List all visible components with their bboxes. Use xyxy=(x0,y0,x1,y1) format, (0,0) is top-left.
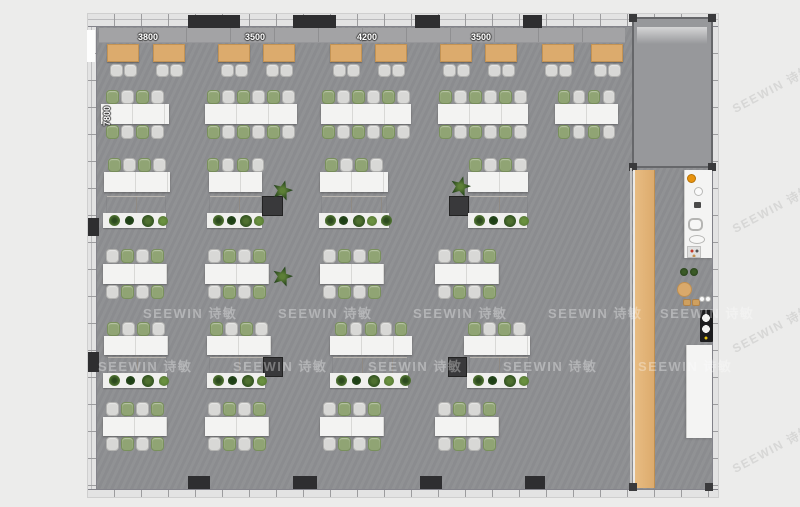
office-chair xyxy=(152,322,165,336)
office-chair xyxy=(106,90,119,104)
plant-icon xyxy=(384,376,394,386)
plant-icon xyxy=(228,376,237,385)
dark-cabinet xyxy=(262,196,283,216)
office-chair xyxy=(380,322,393,336)
booth-table xyxy=(591,44,623,62)
office-chair xyxy=(322,125,335,139)
office-chair xyxy=(136,249,149,263)
office-chair xyxy=(138,158,151,172)
wall-top xyxy=(88,14,718,27)
desk-table xyxy=(103,264,167,284)
office-chair xyxy=(469,158,482,172)
booth-chair xyxy=(124,64,137,77)
office-chair xyxy=(454,125,467,139)
office-chair xyxy=(222,158,235,172)
plant-icon xyxy=(489,216,498,225)
office-chair xyxy=(207,158,220,172)
office-chair xyxy=(237,158,250,172)
sink-icon xyxy=(688,218,703,231)
office-chair xyxy=(514,158,527,172)
watermark: SEEWIN 诗敏 xyxy=(729,60,800,116)
dark-cabinet xyxy=(448,357,467,377)
stool xyxy=(683,299,691,306)
storage-cabinet xyxy=(322,196,386,213)
floor-plan: SEEWIN 诗敏SEEWIN 诗敏SEEWIN 诗敏SEEWIN 诗敏SEEW… xyxy=(0,0,800,507)
office-chair xyxy=(223,249,236,263)
storage-cabinet xyxy=(210,196,261,213)
booth-chair xyxy=(235,64,248,77)
office-chair xyxy=(588,125,601,139)
booth-chair xyxy=(545,64,558,77)
speaker-icon xyxy=(694,202,701,208)
booth-chair xyxy=(110,64,123,77)
office-chair xyxy=(151,90,164,104)
booth-table xyxy=(153,44,185,62)
office-chair xyxy=(106,437,119,451)
dimension-label: 3500 xyxy=(471,32,491,42)
dark-cabinet xyxy=(449,196,469,216)
plant-icon xyxy=(109,215,120,226)
plant-icon xyxy=(325,215,336,226)
wall-post xyxy=(708,14,716,22)
office-chair xyxy=(368,437,381,451)
office-chair xyxy=(237,125,250,139)
office-chair xyxy=(267,90,280,104)
desk-table xyxy=(330,336,412,355)
office-chair xyxy=(210,322,223,336)
booth-table xyxy=(440,44,472,62)
office-chair xyxy=(484,125,497,139)
office-chair xyxy=(153,158,166,172)
office-chair xyxy=(240,322,253,336)
booth-table xyxy=(375,44,407,62)
booth-table xyxy=(107,44,139,62)
office-chair xyxy=(499,158,512,172)
office-chair xyxy=(106,249,119,263)
booth-chair xyxy=(347,64,360,77)
office-chair xyxy=(106,125,119,139)
office-chair xyxy=(468,249,481,263)
office-chair xyxy=(499,90,512,104)
office-chair xyxy=(588,90,601,104)
cooktop xyxy=(700,310,713,342)
office-chair xyxy=(255,322,268,336)
booth-table xyxy=(330,44,362,62)
office-chair xyxy=(136,90,149,104)
office-chair xyxy=(108,158,121,172)
office-chair xyxy=(121,125,134,139)
desk-table xyxy=(555,104,618,124)
office-chair xyxy=(353,402,366,416)
office-chair xyxy=(106,402,119,416)
booth-chair xyxy=(488,64,501,77)
office-chair xyxy=(238,402,251,416)
plant-icon xyxy=(142,215,154,227)
office-chair xyxy=(484,90,497,104)
office-chair xyxy=(382,125,395,139)
office-chair xyxy=(454,90,467,104)
office-chair xyxy=(355,158,368,172)
office-chair xyxy=(483,322,496,336)
desk-table xyxy=(205,104,297,124)
office-chair xyxy=(468,402,481,416)
wall-left xyxy=(88,27,97,489)
booth-chair xyxy=(170,64,183,77)
wall-column xyxy=(293,15,336,29)
plant-icon xyxy=(504,215,516,227)
office-chair xyxy=(368,285,381,299)
storage-cabinet xyxy=(470,196,527,213)
plant-icon xyxy=(126,376,135,385)
plant-icon xyxy=(504,375,516,387)
desk-table xyxy=(205,417,269,436)
office-chair xyxy=(558,90,571,104)
office-chair xyxy=(483,249,496,263)
office-chair xyxy=(483,437,496,451)
plant-icon xyxy=(242,375,254,387)
office-chair xyxy=(573,90,586,104)
wall-column xyxy=(420,476,442,489)
office-chair xyxy=(151,125,164,139)
booth-chair xyxy=(392,64,405,77)
desk-table xyxy=(320,417,384,436)
wall-column xyxy=(88,218,99,236)
office-chair xyxy=(136,285,149,299)
watermark: SEEWIN 诗敏 xyxy=(729,300,800,356)
desk-table xyxy=(320,172,388,192)
dimension-label: 4200 xyxy=(357,32,377,42)
office-chair xyxy=(513,322,526,336)
pantry-counter xyxy=(684,170,712,258)
booth-chair xyxy=(221,64,234,77)
dimension-label: 7800 xyxy=(102,106,112,126)
office-chair xyxy=(151,437,164,451)
office-chair xyxy=(438,437,451,451)
office-chair xyxy=(322,90,335,104)
booth-table xyxy=(263,44,295,62)
wall-column xyxy=(188,15,240,29)
office-chair xyxy=(603,90,616,104)
booth-chair xyxy=(378,64,391,77)
office-chair xyxy=(397,125,410,139)
office-chair xyxy=(337,90,350,104)
booth-table xyxy=(485,44,517,62)
booth-table xyxy=(542,44,574,62)
office-chair xyxy=(469,125,482,139)
office-chair xyxy=(340,158,353,172)
office-chair xyxy=(121,249,134,263)
booth-chair xyxy=(594,64,607,77)
office-chair xyxy=(121,90,134,104)
office-chair xyxy=(468,285,481,299)
office-chair xyxy=(238,285,251,299)
desk-table xyxy=(321,104,411,124)
office-chair xyxy=(222,90,235,104)
desk-table xyxy=(464,336,530,355)
office-chair xyxy=(368,402,381,416)
booth-chair xyxy=(608,64,621,77)
plant-icon xyxy=(109,375,120,386)
plant-icon xyxy=(213,375,224,386)
booth-chair xyxy=(443,64,456,77)
plant-icon xyxy=(227,216,236,225)
office-chair xyxy=(453,285,466,299)
desk-table xyxy=(205,264,269,284)
dark-cabinet xyxy=(263,357,283,377)
office-chair xyxy=(352,125,365,139)
office-chair xyxy=(483,285,496,299)
office-chair xyxy=(325,158,338,172)
basin-icon xyxy=(689,235,705,244)
office-chair xyxy=(136,437,149,451)
desk-table xyxy=(104,172,170,192)
wall-column xyxy=(523,15,542,29)
desk-table xyxy=(209,172,262,192)
office-chair xyxy=(208,285,221,299)
burner-icon xyxy=(687,174,696,183)
wall-post xyxy=(629,483,637,491)
booth-chair xyxy=(156,64,169,77)
office-chair xyxy=(337,125,350,139)
office-chair xyxy=(483,402,496,416)
desk-table xyxy=(320,264,384,284)
office-chair xyxy=(438,402,451,416)
office-chair xyxy=(252,90,265,104)
office-chair xyxy=(222,125,235,139)
office-chair xyxy=(238,249,251,263)
office-chair xyxy=(365,322,378,336)
office-chair xyxy=(267,125,280,139)
office-chair xyxy=(453,249,466,263)
booth-chair xyxy=(266,64,279,77)
plant-icon xyxy=(336,375,347,386)
office-chair xyxy=(136,402,149,416)
whiteboard-strip xyxy=(637,27,707,44)
office-chair xyxy=(338,437,351,451)
storage-cabinet xyxy=(107,196,165,213)
dimension-label: 3800 xyxy=(138,32,158,42)
office-chair xyxy=(223,402,236,416)
booth-chair xyxy=(280,64,293,77)
office-chair xyxy=(353,249,366,263)
plant-icon xyxy=(367,216,377,226)
plant-icon xyxy=(381,215,392,226)
booth-chair xyxy=(457,64,470,77)
wood-walkway xyxy=(633,170,655,488)
office-chair xyxy=(323,402,336,416)
office-chair xyxy=(338,249,351,263)
office-chair xyxy=(573,125,586,139)
office-chair xyxy=(367,125,380,139)
office-chair xyxy=(282,90,295,104)
office-chair xyxy=(252,125,265,139)
office-chair xyxy=(439,125,452,139)
office-chair xyxy=(353,285,366,299)
dimension-label: 3500 xyxy=(245,32,265,42)
office-chair xyxy=(121,285,134,299)
office-chair xyxy=(484,158,497,172)
office-chair xyxy=(282,125,295,139)
office-chair xyxy=(253,285,266,299)
office-chair xyxy=(350,322,363,336)
wall-column xyxy=(415,15,440,29)
office-chair xyxy=(207,90,220,104)
office-chair xyxy=(382,90,395,104)
plant-icon xyxy=(368,375,380,387)
desk-table xyxy=(435,264,499,284)
office-chair xyxy=(107,322,120,336)
office-chair xyxy=(397,90,410,104)
office-chair xyxy=(370,158,383,172)
booth-chair xyxy=(502,64,515,77)
office-chair xyxy=(252,158,265,172)
wall-post xyxy=(629,14,637,22)
office-chair xyxy=(323,437,336,451)
office-chair xyxy=(514,90,527,104)
desk-table xyxy=(104,336,168,355)
office-chair xyxy=(352,90,365,104)
office-chair xyxy=(439,90,452,104)
office-chair xyxy=(253,402,266,416)
office-chair xyxy=(121,437,134,451)
plant-icon xyxy=(353,215,365,227)
plant-icon xyxy=(158,216,168,226)
plant-icon xyxy=(519,376,529,386)
plant-icon xyxy=(257,376,267,386)
office-chair xyxy=(237,90,250,104)
pantry-counter xyxy=(686,345,712,438)
door-gap xyxy=(87,30,95,62)
plant-icon xyxy=(474,215,485,226)
plant-icon xyxy=(519,216,529,226)
storage-cabinet xyxy=(333,357,407,373)
wall-column xyxy=(293,476,317,489)
office-chair xyxy=(499,125,512,139)
office-chair xyxy=(208,249,221,263)
wall-bottom xyxy=(88,489,718,497)
office-chair xyxy=(468,437,481,451)
office-chair xyxy=(453,437,466,451)
corridor-partition xyxy=(630,168,632,488)
office-chair xyxy=(353,437,366,451)
desk-table xyxy=(438,104,528,124)
office-chair xyxy=(208,437,221,451)
office-chair xyxy=(151,249,164,263)
office-chair xyxy=(335,322,348,336)
office-chair xyxy=(253,437,266,451)
plant-icon xyxy=(352,376,361,385)
desk-table xyxy=(103,417,167,436)
kettle-icon xyxy=(705,296,711,302)
watermark: SEEWIN 诗敏 xyxy=(729,420,800,476)
office-chair xyxy=(368,249,381,263)
office-chair xyxy=(323,249,336,263)
plant-icon xyxy=(142,375,154,387)
office-chair xyxy=(106,285,119,299)
office-chair xyxy=(137,322,150,336)
office-chair xyxy=(558,125,571,139)
office-chair xyxy=(438,249,451,263)
office-chair xyxy=(323,285,336,299)
office-chair xyxy=(208,402,221,416)
desk-table xyxy=(468,172,528,192)
office-chair xyxy=(253,249,266,263)
desk-table xyxy=(207,336,271,355)
round-table xyxy=(677,282,692,297)
office-chair xyxy=(151,402,164,416)
plant-icon xyxy=(473,375,484,386)
office-chair xyxy=(468,322,481,336)
plant-icon xyxy=(254,216,264,226)
storage-cabinet xyxy=(210,357,266,373)
office-chair xyxy=(121,402,134,416)
booth-chair xyxy=(559,64,572,77)
office-chair xyxy=(123,158,136,172)
control-panel xyxy=(687,246,701,258)
office-chair xyxy=(223,285,236,299)
booth-chair xyxy=(333,64,346,77)
office-chair xyxy=(514,125,527,139)
storage-cabinet xyxy=(108,357,166,373)
office-chair xyxy=(225,322,238,336)
plant-icon xyxy=(240,215,252,227)
office-chair xyxy=(151,285,164,299)
office-chair xyxy=(238,437,251,451)
plant-icon xyxy=(690,268,698,276)
office-chair xyxy=(395,322,408,336)
wall-column xyxy=(525,476,545,489)
office-chair xyxy=(223,437,236,451)
storage-cabinet xyxy=(470,357,528,373)
office-chair xyxy=(498,322,511,336)
office-chair xyxy=(338,402,351,416)
office-chair xyxy=(438,285,451,299)
office-chair xyxy=(603,125,616,139)
plant-icon xyxy=(680,268,688,276)
office-chair xyxy=(338,285,351,299)
office-chair xyxy=(136,125,149,139)
plant-icon xyxy=(400,375,411,386)
wall-column xyxy=(88,352,99,372)
kettle-icon xyxy=(694,187,703,196)
watermark: SEEWIN 诗敏 xyxy=(729,180,800,236)
desk-table xyxy=(435,417,499,436)
office-chair xyxy=(367,90,380,104)
office-chair xyxy=(469,90,482,104)
plant-icon xyxy=(339,216,348,225)
wall-post xyxy=(705,483,713,491)
office-chair xyxy=(453,402,466,416)
booth-table xyxy=(218,44,250,62)
office-chair xyxy=(122,322,135,336)
plant-icon xyxy=(159,376,169,386)
wall-column xyxy=(188,476,210,489)
plant-icon xyxy=(213,215,224,226)
office-chair xyxy=(207,125,220,139)
